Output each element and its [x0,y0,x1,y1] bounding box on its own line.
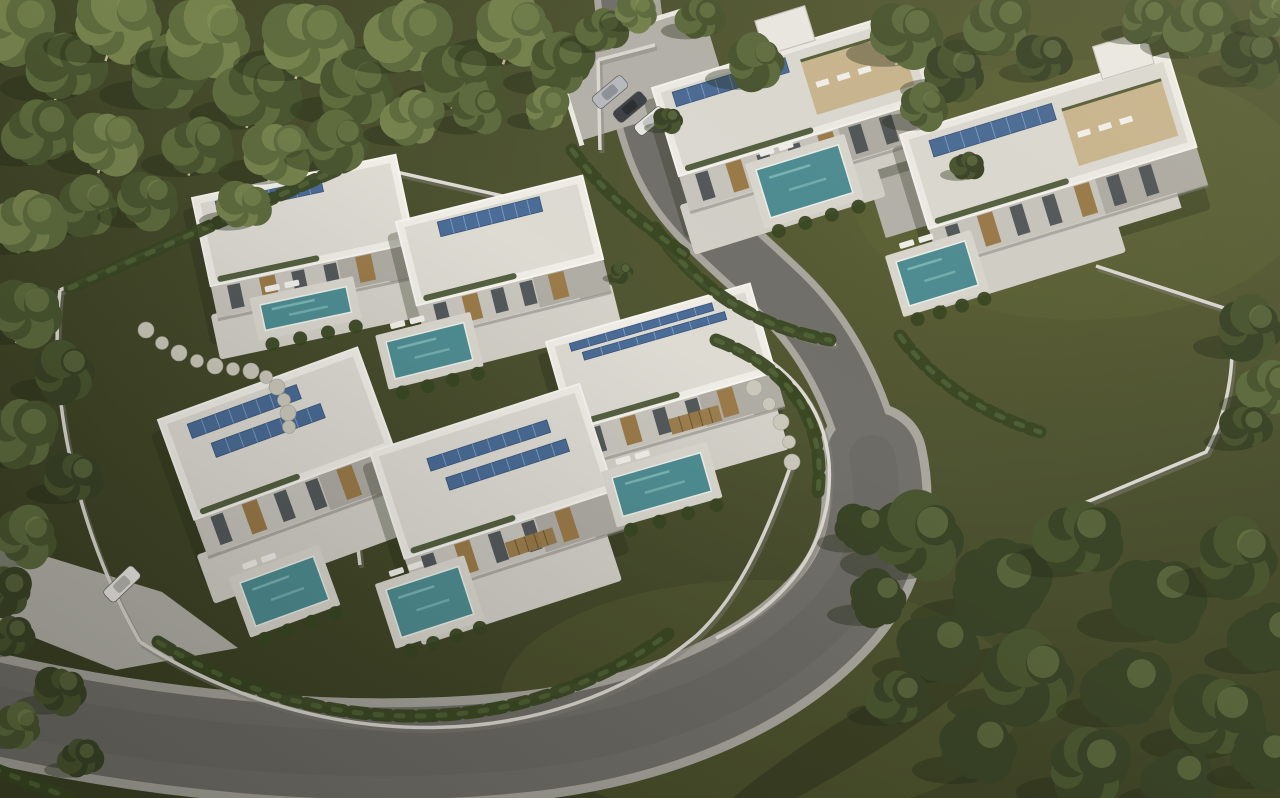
scene-svg [0,0,1280,798]
aerial-render [0,0,1280,798]
light-vignette [0,0,1280,798]
